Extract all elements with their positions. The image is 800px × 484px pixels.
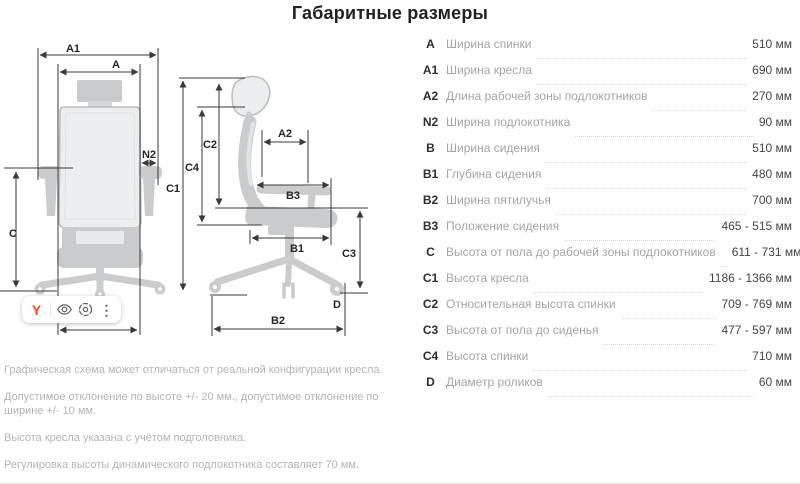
dimension-key: B (418, 141, 443, 155)
dim-label-c2: C2 (203, 139, 217, 151)
dim-label-c1: C1 (166, 183, 180, 195)
dimension-value: 60 мм (759, 375, 792, 389)
dimension-value: 465 - 515 мм (721, 219, 792, 233)
dimension-value: 1186 - 1366 мм (709, 271, 792, 285)
dim-label-b3: B3 (286, 190, 300, 202)
dimension-key: B1 (418, 167, 443, 181)
dimension-value: 90 мм (759, 115, 792, 129)
table-row: A1 Ширина кресла 690 мм (418, 63, 792, 89)
dimension-label: Положение сидения (446, 219, 559, 233)
dimension-label: Ширина спинки (446, 37, 532, 51)
table-row: A Ширина спинки 510 мм (418, 37, 792, 63)
table-row: C Высота от пола до рабочей зоны подлоко… (418, 245, 792, 271)
table-row: B Ширина сидения 510 мм (418, 141, 792, 167)
table-row: C3 Высота от пола до сиденья 477 - 597 м… (418, 323, 792, 349)
dimension-key: B2 (418, 193, 443, 207)
leader-line (537, 84, 747, 85)
dimensions-table: A Ширина спинки 510 мм A1 Ширина кресла … (418, 37, 792, 401)
dimension-label: Ширина подлокотника (446, 115, 570, 129)
leader-line (603, 344, 716, 345)
dimension-value: 510 мм (752, 141, 792, 155)
dimension-value: 700 мм (752, 193, 792, 207)
image-hover-toolbar: Y ⋮ (22, 296, 121, 323)
chair-dimensions-diagram: A1 A N2 C C1 C4 C2 A2 B3 B1 C3 D B2 (0, 0, 420, 400)
dim-label-b1: B1 (290, 243, 304, 255)
table-row: A2 Длина рабочей зоны подлокотников 270 … (418, 89, 792, 115)
more-dots-icon: ⋮ (100, 303, 114, 317)
leader-line (556, 214, 747, 215)
table-row: C1 Высота кресла 1186 - 1366 мм (418, 271, 792, 297)
dimension-label: Длина рабочей зоны подлокотников (446, 89, 647, 103)
leader-line (564, 240, 716, 241)
hide-image-button[interactable] (55, 299, 74, 320)
leader-line (537, 58, 748, 59)
dimension-label: Ширина пятилучья (446, 193, 551, 207)
leader-line (534, 292, 704, 293)
dimension-value: 709 - 769 мм (721, 297, 792, 311)
footnote: Регулировка высоты динамического подлоко… (4, 458, 390, 472)
footnotes: Графическая схема может отличаться от ре… (4, 363, 390, 484)
dimension-key: C4 (418, 349, 443, 363)
dimension-value: 510 мм (752, 37, 792, 51)
yandex-logo-button[interactable]: Y (27, 299, 46, 320)
dim-label-a1: A1 (66, 43, 80, 55)
dim-label-b2: B2 (271, 315, 285, 327)
dimension-key: C1 (418, 271, 443, 285)
table-row: D Диаметр роликов 60 мм (418, 375, 792, 401)
dim-label-c4: C4 (185, 162, 200, 174)
toolbar-divider (50, 302, 51, 317)
leader-line (546, 188, 747, 189)
leader-line (621, 318, 717, 319)
chair-side-view (209, 76, 344, 297)
dimension-key: B3 (418, 219, 443, 233)
dimension-key: A1 (418, 63, 443, 77)
dimension-key: C (418, 245, 443, 259)
dimension-key: C2 (418, 297, 443, 311)
dimension-value: 270 мм (752, 89, 792, 103)
dimension-label: Глубина сидения (446, 167, 541, 181)
leader-line (575, 136, 754, 137)
dim-label-a: A (112, 59, 120, 71)
dimension-value: 690 мм (752, 63, 792, 77)
leader-line (548, 396, 754, 397)
dimension-key: D (418, 375, 443, 389)
dimension-key: C3 (418, 323, 443, 337)
search-by-image-icon (77, 301, 94, 318)
table-row: B2 Ширина пятилучья 700 мм (418, 193, 792, 219)
leader-line (545, 162, 747, 163)
leader-line (533, 370, 747, 371)
dimension-label: Высота от пола до сиденья (446, 323, 598, 337)
dimension-label: Высота кресла (446, 271, 529, 285)
footnote: Высота кресла указана с учётом подголовн… (4, 431, 390, 445)
dimension-key: A2 (418, 89, 443, 103)
dimension-value: 611 - 731 мм (732, 245, 800, 259)
dim-label-d: D (333, 299, 341, 311)
table-row: C2 Относительная высота спинки 709 - 769… (418, 297, 792, 323)
leader-line (721, 266, 727, 267)
eye-icon (56, 301, 73, 318)
dimension-value: 710 мм (752, 349, 792, 363)
more-actions-button[interactable]: ⋮ (97, 299, 116, 320)
table-row: B1 Глубина сидения 480 мм (418, 167, 792, 193)
page: Габаритные размеры (0, 0, 800, 484)
table-row: N2 Ширина подлокотника 90 мм (418, 115, 792, 141)
dimension-value: 480 мм (752, 167, 792, 181)
table-row: C4 Высота спинки 710 мм (418, 349, 792, 375)
dim-label-c3: C3 (342, 248, 356, 260)
dim-label-c: C (9, 228, 17, 240)
dimension-label: Высота спинки (446, 349, 528, 363)
dimension-key: N2 (418, 115, 443, 129)
footnote: Графическая схема может отличаться от ре… (4, 363, 390, 377)
dimension-label: Ширина сидения (446, 141, 540, 155)
dimension-value: 477 - 597 мм (721, 323, 792, 337)
dimension-label: Относительная высота спинки (446, 297, 616, 311)
dim-label-n2: N2 (142, 149, 156, 161)
dimension-key: A (418, 37, 443, 51)
dimension-label: Диаметр роликов (446, 375, 543, 389)
yandex-icon: Y (32, 303, 41, 317)
table-row: B3 Положение сидения 465 - 515 мм (418, 219, 792, 245)
footnote: Допустимое отклонение по высоте +/- 20 м… (4, 390, 390, 418)
chair-front-view (35, 80, 166, 299)
leader-line (652, 110, 747, 111)
dimension-label: Ширина кресла (446, 63, 532, 77)
dim-label-a2: A2 (278, 128, 292, 140)
search-by-image-button[interactable] (76, 299, 95, 320)
dimension-label: Высота от пола до рабочей зоны подлокотн… (446, 245, 716, 259)
